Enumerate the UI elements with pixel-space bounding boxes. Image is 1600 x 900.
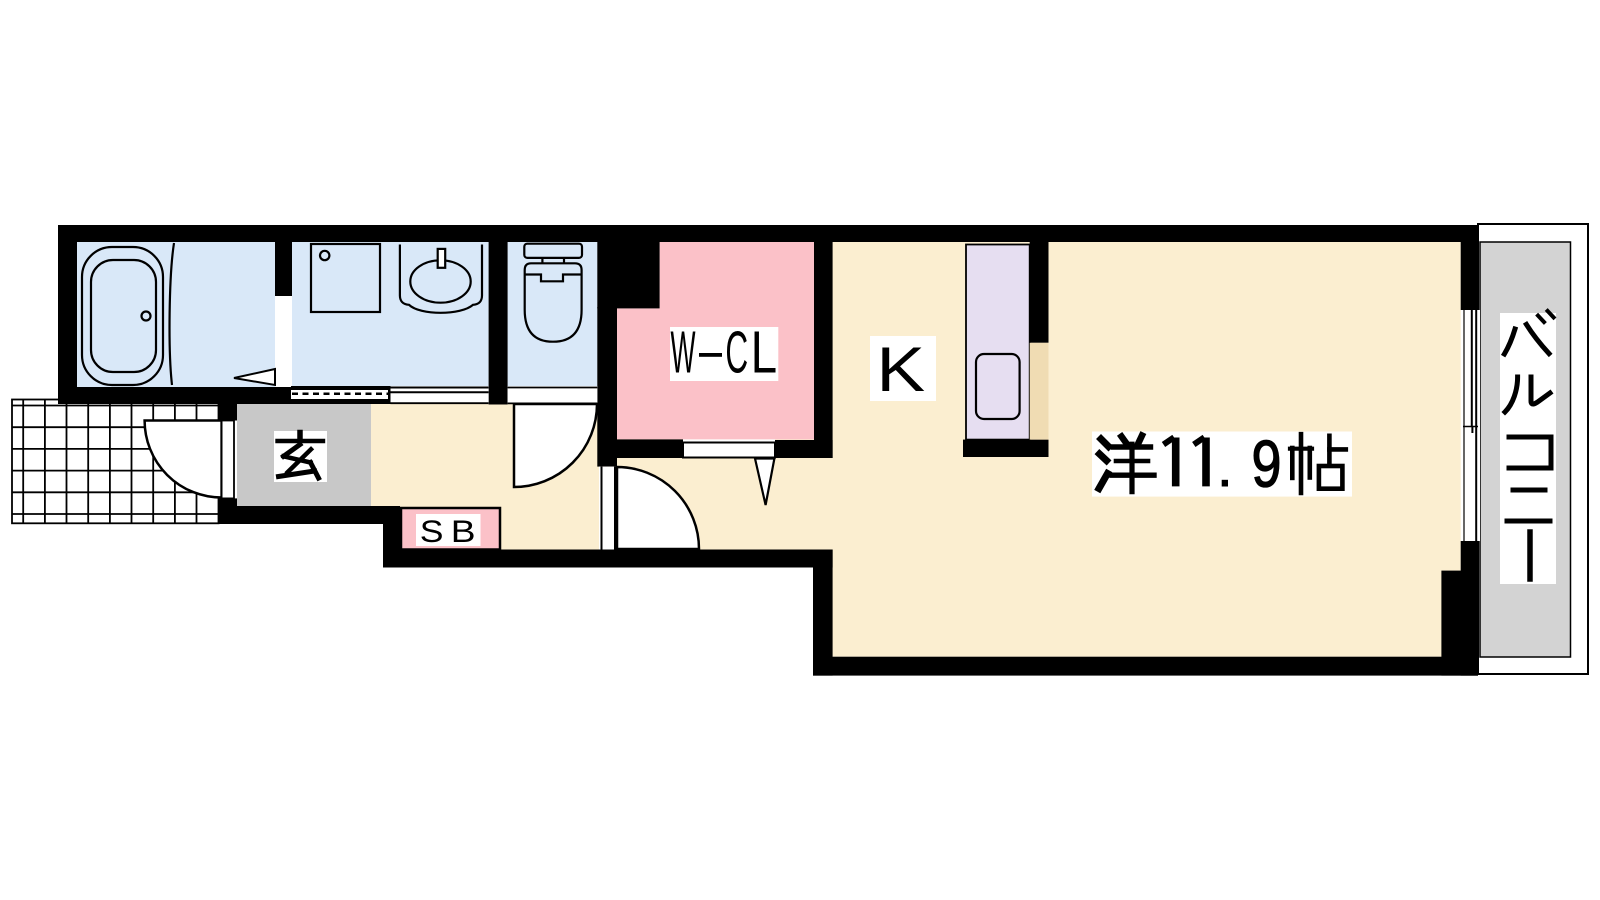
svg-text:B: B [451,514,476,549]
svg-text:L: L [751,319,777,385]
svg-text:K: K [876,335,925,405]
svg-text:C: C [725,320,748,386]
svg-text:S: S [420,515,444,550]
svg-text:9: 9 [1252,427,1282,501]
svg-text:W: W [671,318,696,385]
